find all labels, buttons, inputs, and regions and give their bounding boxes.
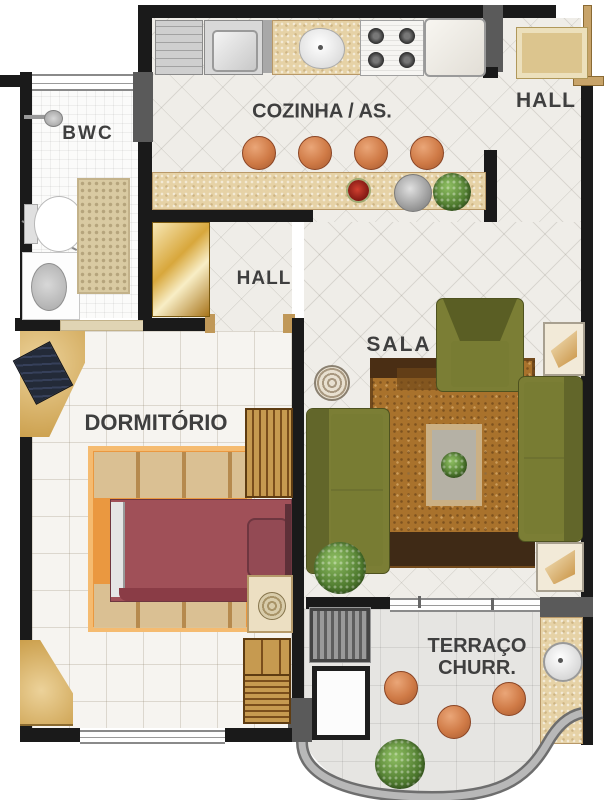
sofa-right-cushions (524, 382, 564, 534)
terrace-stool-1 (384, 671, 418, 705)
sliding-door-tick-2 (491, 598, 494, 610)
floor-lamp (314, 365, 350, 401)
kitchen-sink-drain (318, 45, 323, 50)
flower-vase (348, 180, 369, 201)
terrace-plant (375, 739, 425, 789)
sala-rug-dark-bottom (375, 532, 535, 566)
nightstand (247, 575, 293, 633)
wall-under-counter (140, 208, 313, 222)
bar-stool-2 (298, 136, 332, 170)
washer-door (212, 30, 258, 72)
bwc-sink-counter (22, 252, 80, 320)
bathroom-door-threshold (60, 320, 145, 331)
bedroom-rug-pattern-top (94, 452, 246, 498)
floorplan: BWC COZINHA / AS. HALL HALL SALA DORMITÓ… (0, 0, 606, 800)
armchair-back (443, 299, 517, 343)
room-label-terraco-line2: CHURR. (428, 657, 527, 679)
stove (360, 20, 424, 76)
pillow (247, 518, 289, 578)
terrace-sink (543, 642, 583, 682)
nightstand-lamp (258, 592, 286, 620)
wall-left-stub (0, 75, 20, 87)
burner-1 (368, 28, 384, 44)
washing-machine (204, 20, 263, 75)
shower-head-icon (44, 110, 63, 127)
sofa-right-back (564, 377, 582, 541)
counter-divider (263, 20, 272, 73)
barbecue-grill (310, 608, 370, 662)
terrace-bench (312, 666, 370, 740)
armchair-seat (451, 341, 509, 387)
room-label-hall-interno: HALL (237, 268, 292, 290)
sofa-right (518, 376, 583, 542)
terrace-stool-2 (492, 682, 526, 716)
kitchen-counter (272, 20, 362, 75)
bar-stool-4 (410, 136, 444, 170)
side-table-top-item (551, 330, 578, 368)
wall-bedroom-bottom-left (20, 728, 80, 742)
bwc-sink-basin (31, 263, 67, 311)
wall-shaft-gray (133, 72, 153, 142)
burner-4 (399, 52, 415, 68)
closet-top-section (245, 640, 289, 676)
fridge (424, 18, 486, 77)
wall-entry-gray (483, 5, 503, 72)
bar-stool-3 (354, 136, 388, 170)
room-label-hall-externo: HALL (516, 89, 576, 113)
laundry-tub (155, 20, 203, 75)
armchair (436, 298, 524, 392)
wall-bedroom-top-b (143, 318, 205, 331)
bed-foot-band (111, 502, 125, 597)
bathroom-window (32, 74, 133, 91)
room-label-bwc: BWC (62, 123, 113, 145)
wall-bathroom-right (138, 142, 152, 331)
counter-plant (433, 173, 471, 211)
bar-stool-1 (242, 136, 276, 170)
doormat (517, 28, 587, 78)
room-label-terraco-line1: TERRAÇO (428, 635, 527, 657)
bedroom-closet-low (243, 638, 291, 724)
terrace-stool-3 (437, 705, 471, 739)
wardrobe (245, 408, 293, 498)
wall-bedroom-bottom-right (225, 728, 292, 742)
side-table-bottom-item (545, 550, 576, 585)
sliding-door-tick-1 (418, 596, 421, 608)
room-label-cozinha: COZINHA / AS. (252, 101, 392, 124)
terrace-counter (540, 617, 583, 744)
coffee-table-plant (441, 452, 467, 478)
burner-2 (399, 28, 415, 44)
wall-bedroom-sala-divider (292, 318, 304, 700)
wall-terrace-right-gray (540, 597, 593, 617)
terrace-sink-drain (558, 658, 563, 663)
room-label-dormitorio: DORMITÓRIO (85, 410, 228, 436)
side-table-top (543, 322, 585, 376)
sala-plant (314, 542, 366, 594)
wall-kitchen-left-top (138, 5, 152, 72)
bedroom-door-leaf (152, 222, 210, 317)
burner-3 (368, 52, 384, 68)
closet-bottom-section (245, 676, 289, 722)
terrace-sliding-door (390, 598, 540, 612)
room-label-sala: SALA (366, 333, 431, 357)
fruit-plate (394, 174, 432, 212)
room-label-terraco: TERRAÇO CHURR. (428, 635, 527, 679)
side-table-bottom (536, 542, 584, 592)
bedroom-window (80, 730, 225, 744)
bwc-mat (77, 178, 130, 294)
